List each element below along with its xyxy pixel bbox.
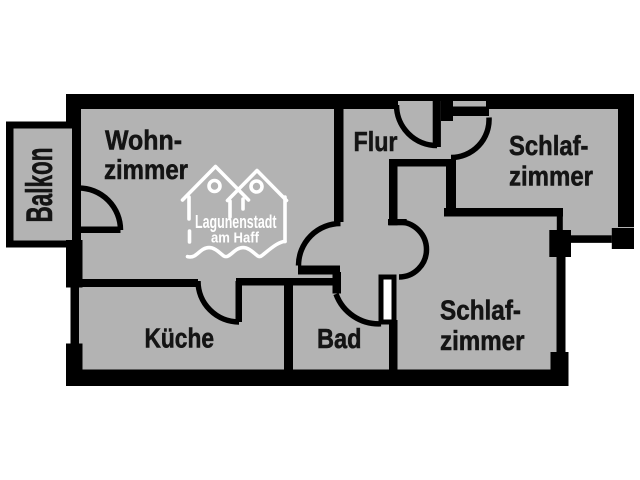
svg-text:zimmer: zimmer — [509, 161, 593, 192]
svg-text:Küche: Küche — [145, 323, 215, 354]
svg-text:Schlaf-: Schlaf- — [440, 295, 521, 326]
svg-text:am Haff: am Haff — [211, 230, 260, 247]
svg-text:zimmer: zimmer — [440, 325, 525, 356]
svg-text:Wohn-: Wohn- — [105, 125, 182, 156]
svg-text:Balkon: Balkon — [19, 148, 60, 223]
svg-text:Schlaf-: Schlaf- — [509, 130, 589, 161]
svg-text:Flur: Flur — [354, 126, 398, 157]
svg-text:zimmer: zimmer — [104, 154, 188, 185]
svg-text:Bad: Bad — [317, 323, 362, 354]
